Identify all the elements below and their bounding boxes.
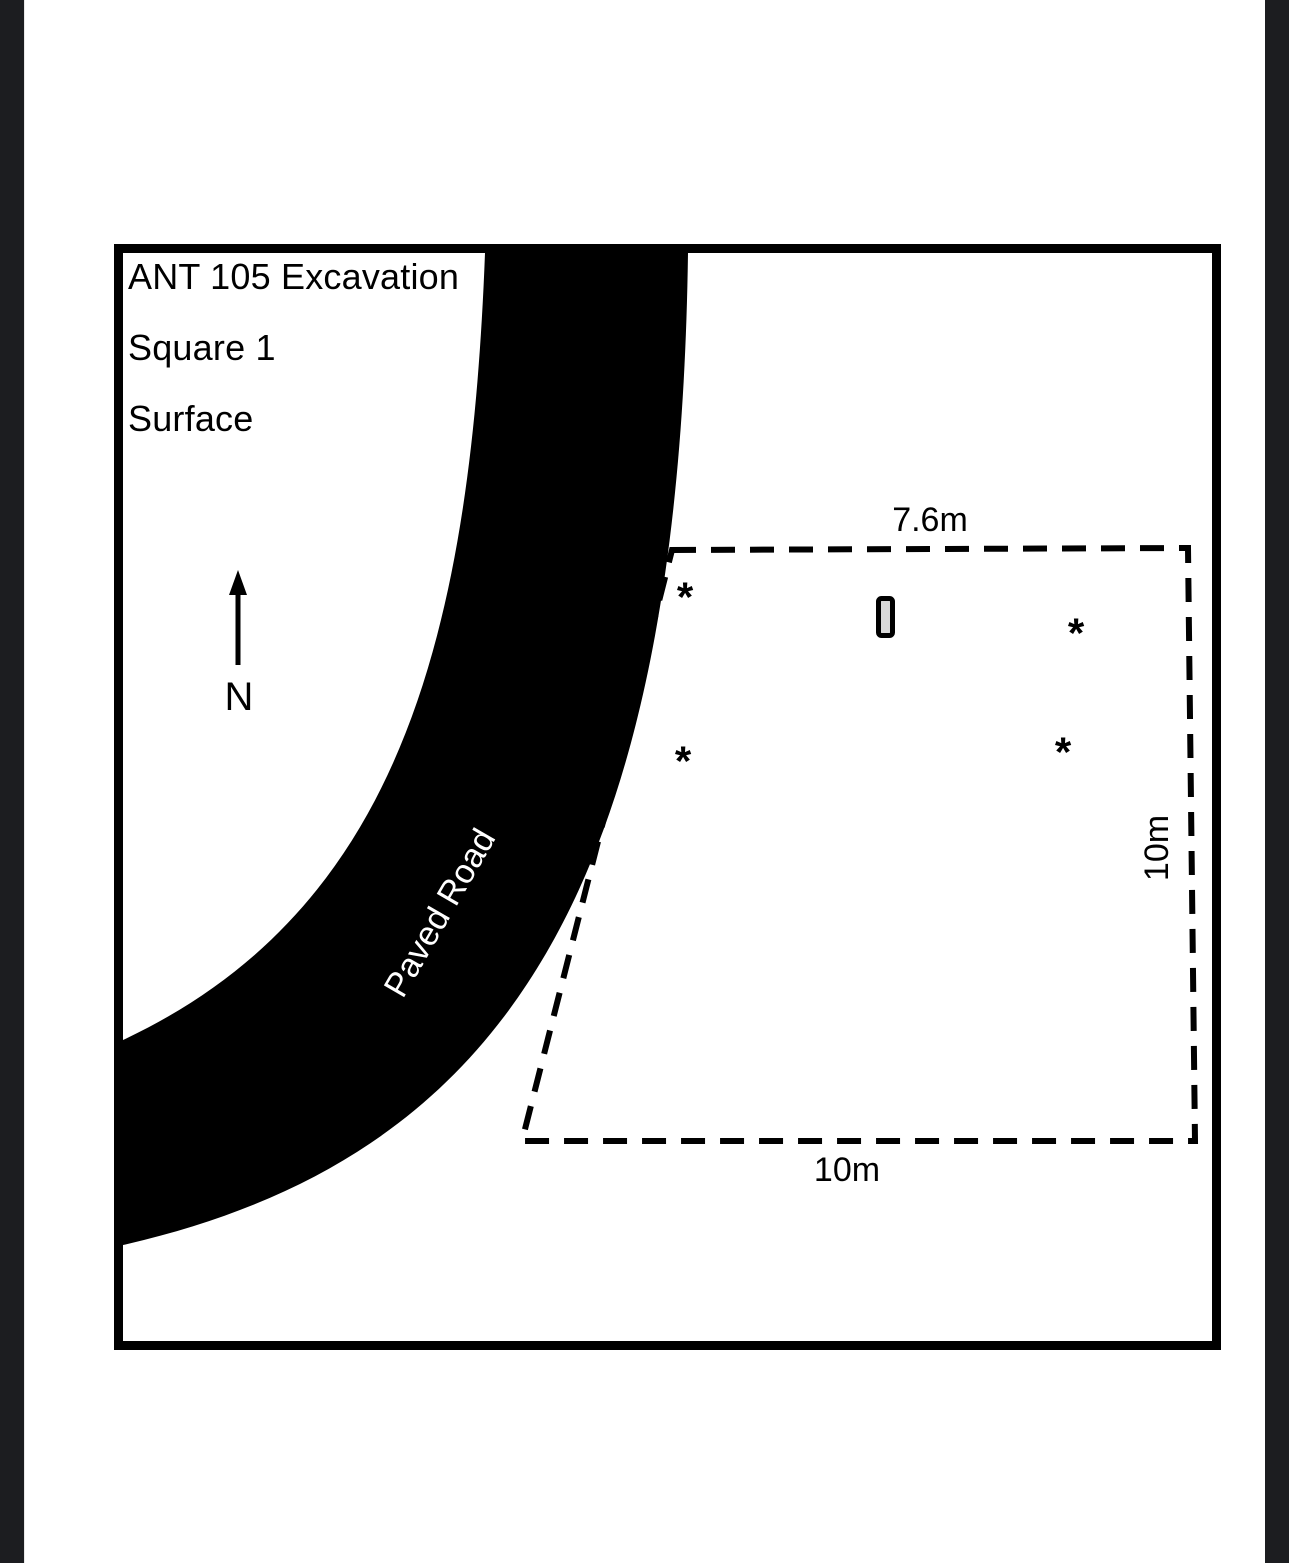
map-frame: ANT 105 Excavation Square 1 Surface 7.6m… (114, 244, 1221, 1350)
find-marker-4: * (1055, 731, 1071, 773)
find-marker-1: * (677, 576, 693, 618)
find-marker-2: * (675, 740, 691, 782)
north-arrow-head (229, 570, 247, 595)
document-page: ANT 105 Excavation Square 1 Surface 7.6m… (25, 0, 1265, 1563)
viewer-gutter-right (1265, 0, 1289, 1563)
artifact-rect (879, 599, 893, 636)
dimension-label-top: 7.6m (892, 503, 968, 537)
viewer-gutter-left (0, 0, 25, 1563)
map-title: ANT 105 Excavation Square 1 Surface (128, 241, 459, 454)
map-title-line-3: Surface (128, 383, 459, 454)
dimension-label-right: 10m (1140, 815, 1174, 881)
north-label: N (225, 677, 254, 717)
dimension-label-bottom: 10m (814, 1153, 880, 1187)
map-title-line-2: Square 1 (128, 312, 459, 383)
find-marker-3: * (1068, 612, 1084, 654)
map-title-line-1: ANT 105 Excavation (128, 241, 459, 312)
